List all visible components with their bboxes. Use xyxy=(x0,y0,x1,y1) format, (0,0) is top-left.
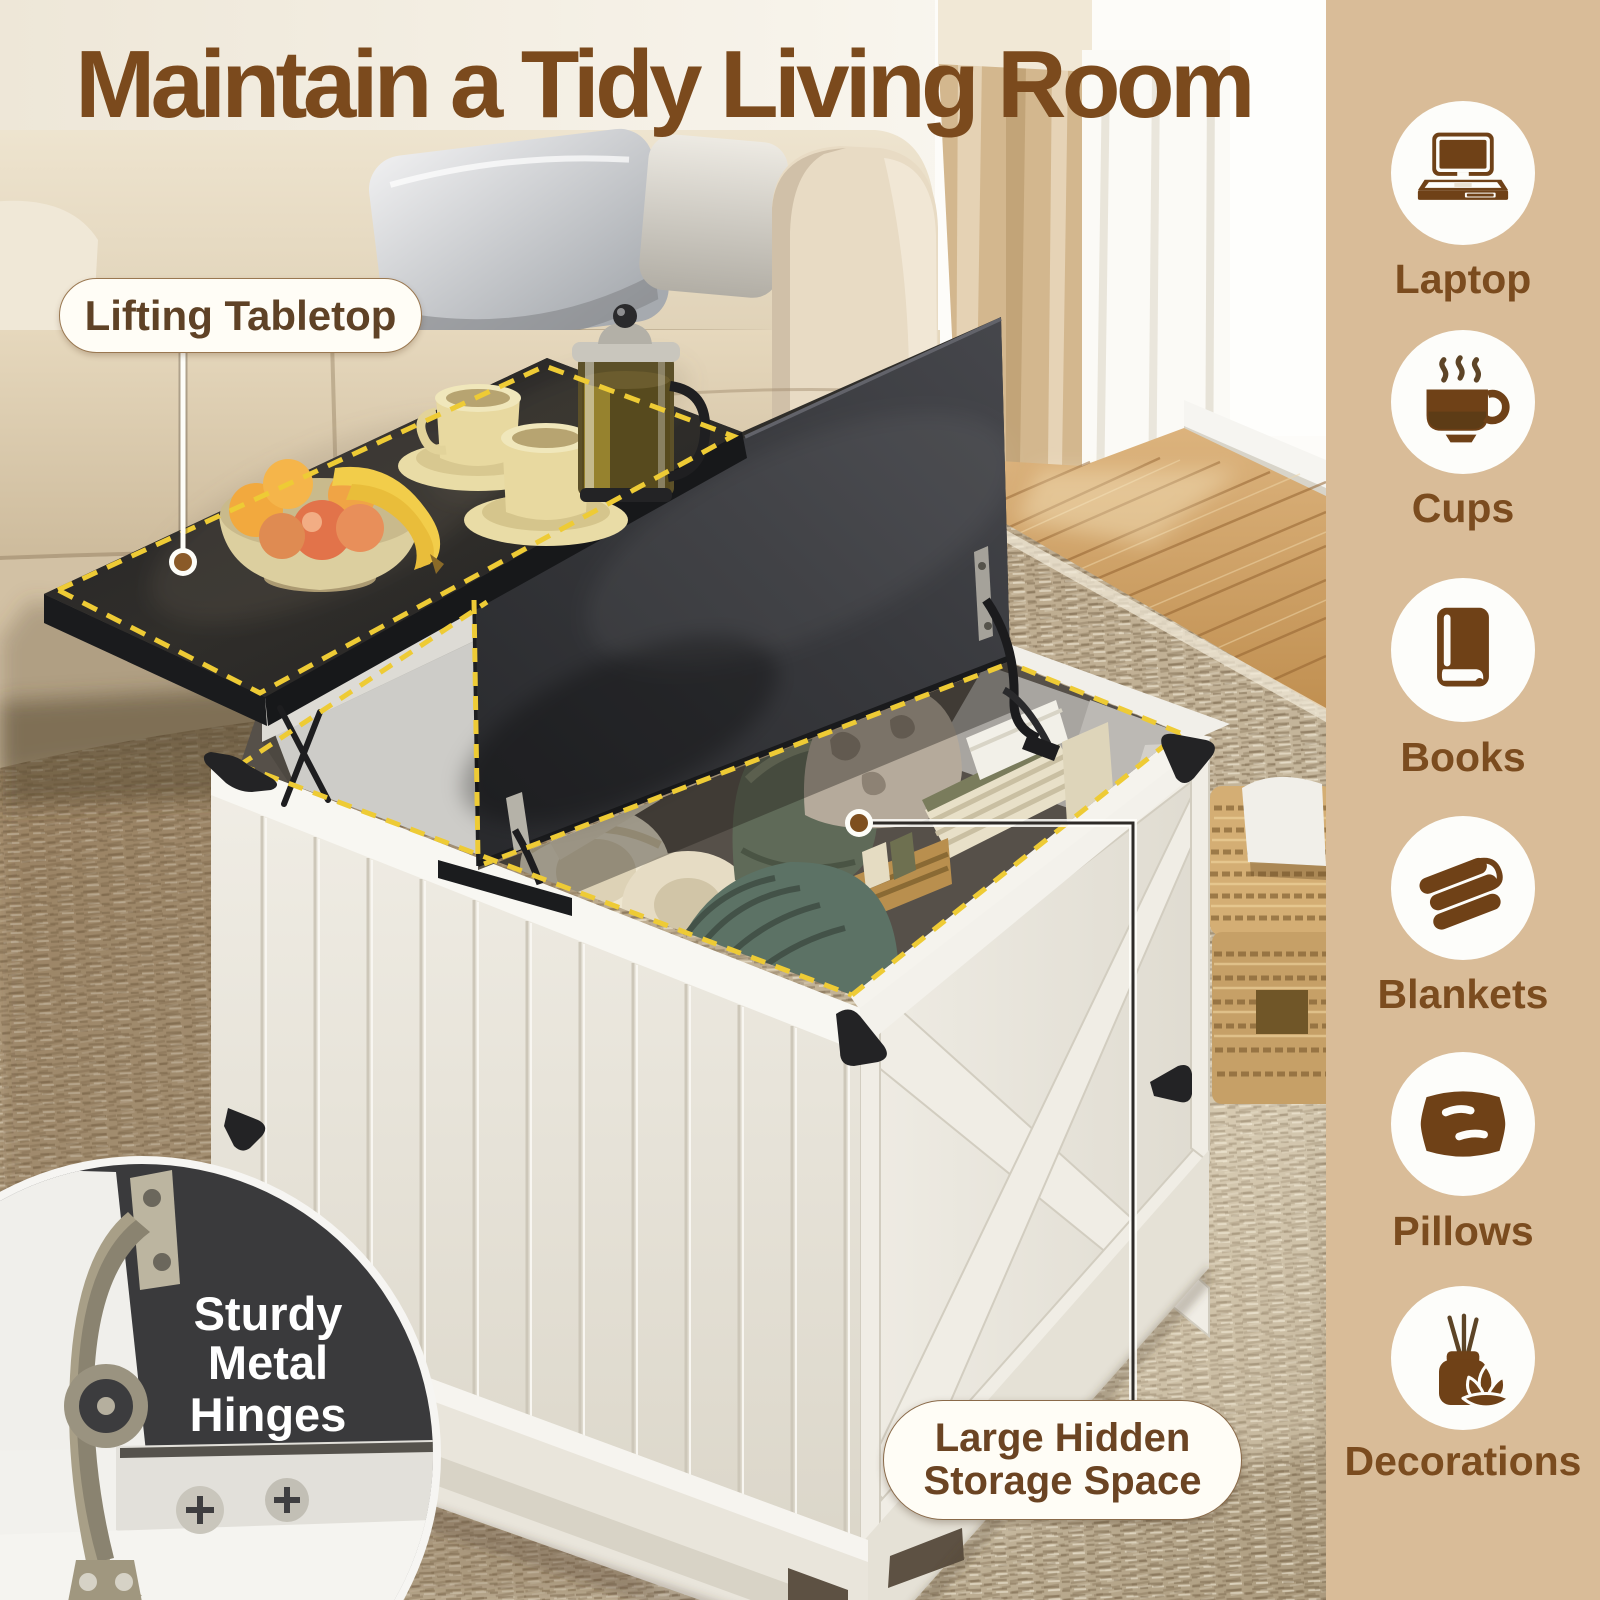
svg-text:Sturdy: Sturdy xyxy=(194,1287,343,1340)
svg-text:Metal: Metal xyxy=(208,1336,328,1389)
svg-text:Hinges: Hinges xyxy=(190,1388,347,1441)
